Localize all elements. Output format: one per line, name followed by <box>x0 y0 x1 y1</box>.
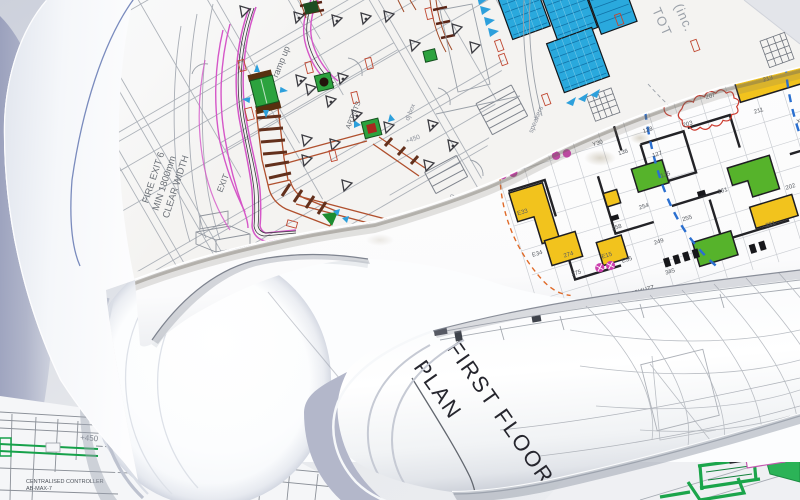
svg-text:AB-MAX-7: AB-MAX-7 <box>26 486 52 492</box>
svg-text:CENTRALISED CONTROLLER: CENTRALISED CONTROLLER <box>26 479 104 485</box>
